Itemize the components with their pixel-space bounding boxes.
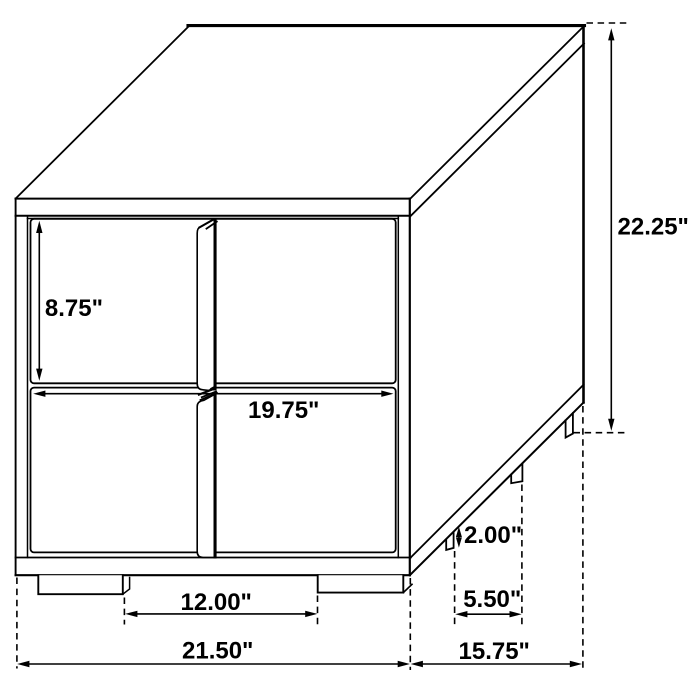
svg-text:22.25": 22.25" xyxy=(618,214,689,241)
svg-text:8.75": 8.75" xyxy=(45,295,103,322)
svg-text:15.75": 15.75" xyxy=(459,638,530,665)
svg-text:5.50": 5.50" xyxy=(463,586,521,613)
svg-text:2.00": 2.00" xyxy=(464,522,522,549)
svg-text:19.75": 19.75" xyxy=(248,397,319,424)
svg-text:21.50": 21.50" xyxy=(182,638,253,665)
svg-text:12.00": 12.00" xyxy=(181,589,252,616)
